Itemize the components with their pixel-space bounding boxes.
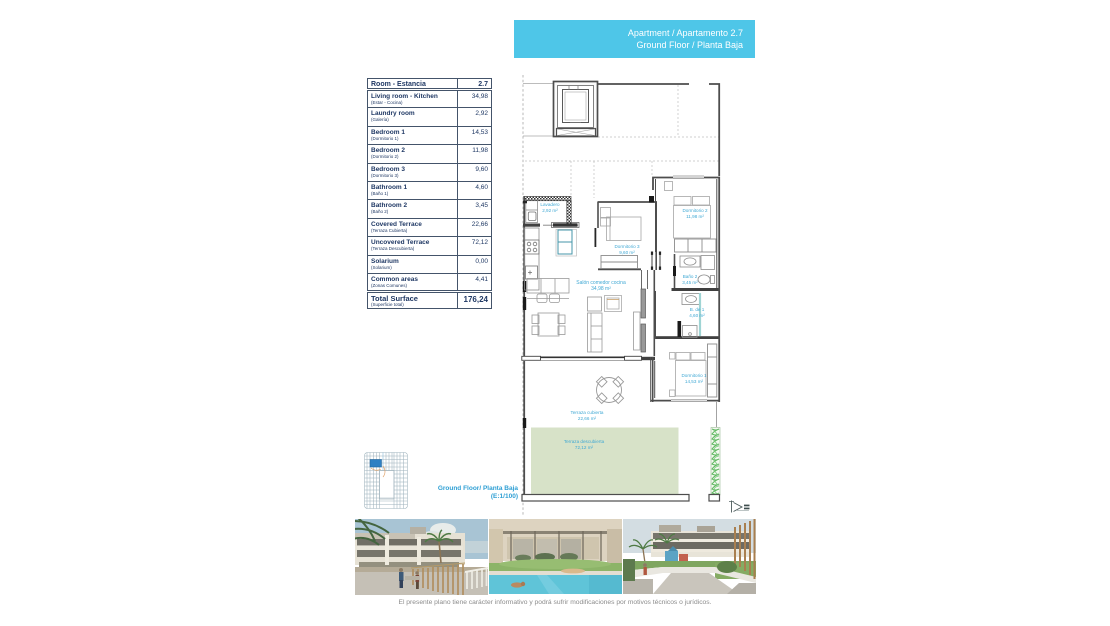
svg-text:Dormitorio 2: Dormitorio 2 — [682, 208, 707, 213]
svg-text:Lavadero: Lavadero — [540, 202, 560, 207]
svg-text:Terraza descubierta: Terraza descubierta — [564, 439, 605, 444]
svg-text:B. de 1: B. de 1 — [690, 307, 705, 312]
svg-text:11,98 m²: 11,98 m² — [686, 214, 704, 219]
svg-text:Dormitorio 3: Dormitorio 3 — [614, 244, 639, 249]
svg-text:Terraza cubierta: Terraza cubierta — [571, 410, 604, 415]
svg-text:9,60 m²: 9,60 m² — [619, 250, 635, 255]
svg-text:Baño 2: Baño 2 — [683, 274, 698, 279]
svg-text:4,60 m²: 4,60 m² — [689, 313, 705, 318]
svg-text:3,45 m²: 3,45 m² — [682, 280, 698, 285]
svg-text:14,53 m²: 14,53 m² — [685, 379, 704, 384]
svg-text:Dormitorio 1: Dormitorio 1 — [681, 373, 706, 378]
svg-text:34,98 m²: 34,98 m² — [591, 286, 611, 292]
svg-text:72,12 m²: 72,12 m² — [575, 445, 594, 450]
svg-text:22,66 m²: 22,66 m² — [578, 416, 597, 421]
svg-text:2,92 m²: 2,92 m² — [542, 208, 558, 213]
